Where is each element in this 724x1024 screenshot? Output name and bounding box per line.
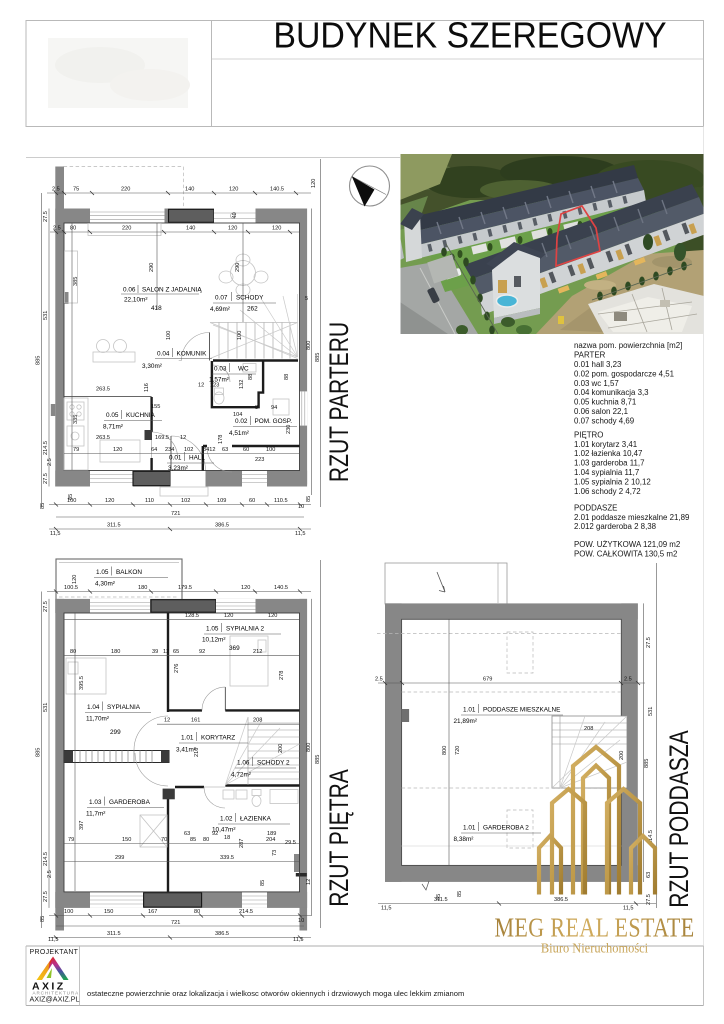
svg-text:73: 73 <box>272 850 278 856</box>
svg-text:311.5: 311.5 <box>107 931 121 937</box>
svg-text:3,23m²: 3,23m² <box>168 465 188 472</box>
svg-text:2.012 garderoba 2 8,38: 2.012 garderoba 2 8,38 <box>574 522 657 531</box>
svg-text:4,72m²: 4,72m² <box>231 772 251 779</box>
svg-text:2.5: 2.5 <box>47 458 53 466</box>
svg-text:12: 12 <box>180 435 186 441</box>
svg-text:92: 92 <box>212 831 218 837</box>
svg-text:287: 287 <box>239 839 245 848</box>
svg-text:120: 120 <box>113 447 122 453</box>
svg-text:721: 721 <box>171 511 180 517</box>
svg-text:1.04 sypialnia 11,7: 1.04 sypialnia 11,7 <box>574 468 639 477</box>
svg-text:0.07: 0.07 <box>215 295 228 302</box>
svg-text:0.04 komunikacja 3,3: 0.04 komunikacja 3,3 <box>574 388 649 397</box>
svg-text:75: 75 <box>73 187 79 193</box>
svg-text:531: 531 <box>43 703 49 712</box>
svg-text:85: 85 <box>457 891 463 897</box>
svg-text:123: 123 <box>210 383 219 389</box>
svg-text:140.5: 140.5 <box>274 585 288 591</box>
svg-text:12: 12 <box>198 383 204 389</box>
svg-text:3412: 3412 <box>203 447 215 453</box>
svg-text:88: 88 <box>248 374 254 380</box>
svg-text:679: 679 <box>483 677 492 683</box>
svg-text:MEG REAL ESTATE: MEG REAL ESTATE <box>494 913 694 943</box>
svg-text:29.5: 29.5 <box>285 840 296 846</box>
svg-text:4,30m²: 4,30m² <box>95 581 115 588</box>
svg-text:1.03 garderoba 11,7: 1.03 garderoba 11,7 <box>574 459 645 468</box>
svg-text:22,10m²: 22,10m² <box>124 297 147 304</box>
svg-text:AXIZ@AXIZ.PL: AXIZ@AXIZ.PL <box>30 995 80 1004</box>
svg-text:100: 100 <box>166 331 172 340</box>
svg-text:150: 150 <box>122 837 131 843</box>
svg-text:2.5: 2.5 <box>47 870 53 878</box>
svg-text:KOMUNIK: KOMUNIK <box>177 351 208 358</box>
svg-text:2.5: 2.5 <box>52 187 60 193</box>
svg-text:18: 18 <box>224 835 230 841</box>
svg-text:230: 230 <box>286 425 292 434</box>
svg-text:88: 88 <box>284 374 290 380</box>
svg-text:SYPIALNIA 2: SYPIALNIA 2 <box>226 626 264 633</box>
svg-text:200: 200 <box>619 751 625 760</box>
svg-text:PODDASZE: PODDASZE <box>574 503 617 512</box>
svg-text:SCHODY: SCHODY <box>236 295 264 302</box>
svg-text:369: 369 <box>229 645 240 652</box>
svg-text:11,5: 11,5 <box>50 531 60 537</box>
svg-text:70: 70 <box>161 837 167 843</box>
svg-text:39: 39 <box>152 649 158 655</box>
svg-text:85: 85 <box>40 916 46 922</box>
svg-text:0.03: 0.03 <box>214 366 227 373</box>
svg-text:128.5: 128.5 <box>185 613 199 619</box>
svg-text:12: 12 <box>164 718 170 724</box>
svg-text:85: 85 <box>306 496 312 502</box>
svg-text:8: 8 <box>255 405 258 411</box>
svg-text:1.05: 1.05 <box>96 569 109 576</box>
svg-text:102: 102 <box>181 498 190 504</box>
svg-text:85: 85 <box>260 880 266 886</box>
svg-text:339.5: 339.5 <box>220 855 234 861</box>
svg-text:1.04: 1.04 <box>87 704 100 711</box>
svg-text:2.5: 2.5 <box>375 677 383 683</box>
svg-text:21,89m²: 21,89m² <box>454 718 477 725</box>
svg-text:385: 385 <box>73 277 79 286</box>
svg-text:104: 104 <box>233 412 242 418</box>
svg-text:120: 120 <box>72 575 78 584</box>
svg-text:80: 80 <box>203 837 209 843</box>
svg-text:278: 278 <box>279 671 285 680</box>
svg-text:220: 220 <box>122 226 131 232</box>
svg-text:PARTER: PARTER <box>574 351 606 360</box>
svg-text:276: 276 <box>174 664 180 673</box>
svg-text:0.02 pom. gospodarcze 4,51: 0.02 pom. gospodarcze 4,51 <box>574 369 674 378</box>
svg-text:720: 720 <box>455 746 461 755</box>
svg-text:299: 299 <box>115 855 124 861</box>
svg-text:120: 120 <box>241 585 250 591</box>
svg-text:212: 212 <box>253 649 262 655</box>
svg-text:220: 220 <box>121 187 130 193</box>
svg-text:12: 12 <box>163 649 169 655</box>
svg-text:KORYTARZ: KORYTARZ <box>201 735 235 742</box>
svg-text:290: 290 <box>149 263 155 272</box>
svg-text:150: 150 <box>104 909 113 915</box>
svg-text:800: 800 <box>306 743 312 752</box>
svg-text:10,12m²: 10,12m² <box>202 637 225 644</box>
svg-text:80: 80 <box>70 226 76 232</box>
svg-text:27.5: 27.5 <box>43 473 49 484</box>
svg-text:8,38m²: 8,38m² <box>454 836 474 843</box>
svg-text:216: 216 <box>194 748 200 757</box>
svg-text:GARDEROBA 2: GARDEROBA 2 <box>483 825 529 832</box>
svg-text:85: 85 <box>436 894 442 900</box>
svg-text:180: 180 <box>111 649 120 655</box>
svg-text:1.01 korytarz 3,41: 1.01 korytarz 3,41 <box>574 440 637 449</box>
svg-text:60: 60 <box>243 447 249 453</box>
svg-text:223: 223 <box>255 457 264 463</box>
svg-text:1.01: 1.01 <box>463 707 476 714</box>
svg-text:79: 79 <box>68 837 74 843</box>
svg-text:311.5: 311.5 <box>107 523 121 529</box>
svg-text:208: 208 <box>584 726 593 732</box>
svg-text:885: 885 <box>644 759 650 768</box>
svg-text:0.01: 0.01 <box>169 455 182 462</box>
svg-text:11,5: 11,5 <box>295 531 305 537</box>
svg-text:263.5: 263.5 <box>96 387 110 393</box>
svg-text:100: 100 <box>64 909 73 915</box>
svg-text:27.5: 27.5 <box>43 211 49 222</box>
svg-text:263.5: 263.5 <box>96 435 110 441</box>
svg-text:0.07 schody 4,69: 0.07 schody 4,69 <box>574 416 635 425</box>
svg-text:800: 800 <box>306 341 312 350</box>
svg-text:4,69m²: 4,69m² <box>210 306 230 313</box>
svg-text:0.01 hall 3,23: 0.01 hall 3,23 <box>574 360 622 369</box>
svg-text:721: 721 <box>171 920 180 926</box>
svg-text:KUCHNIA: KUCHNIA <box>126 412 155 419</box>
svg-text:120: 120 <box>272 226 281 232</box>
svg-text:1.03: 1.03 <box>89 799 102 806</box>
svg-text:85: 85 <box>40 503 46 509</box>
svg-text:885: 885 <box>36 356 42 365</box>
svg-text:10: 10 <box>298 918 304 924</box>
svg-text:335: 335 <box>73 415 79 424</box>
svg-text:1.02 łazienka 10,47: 1.02 łazienka 10,47 <box>574 449 642 458</box>
svg-text:5: 5 <box>305 296 308 302</box>
svg-text:PROJEKTANT: PROJEKTANT <box>30 949 79 956</box>
svg-text:12: 12 <box>306 879 312 885</box>
svg-text:204: 204 <box>266 837 275 843</box>
svg-text:0.05: 0.05 <box>106 412 119 419</box>
svg-text:40: 40 <box>232 212 238 218</box>
svg-text:299: 299 <box>110 729 121 736</box>
svg-text:1.06: 1.06 <box>237 760 250 767</box>
svg-text:200: 200 <box>278 744 284 753</box>
svg-text:POM. GOSP.: POM. GOSP. <box>255 418 293 425</box>
svg-text:395.5: 395.5 <box>79 676 85 690</box>
svg-text:180: 180 <box>138 585 147 591</box>
svg-text:214.5: 214.5 <box>43 852 49 866</box>
svg-text:386.5: 386.5 <box>215 931 229 937</box>
svg-text:BALKON: BALKON <box>116 569 142 576</box>
svg-text:800: 800 <box>442 746 448 755</box>
svg-text:161: 161 <box>191 718 200 724</box>
svg-text:120: 120 <box>311 179 317 188</box>
svg-text:BUDYNEK SZEREGOWY: BUDYNEK SZEREGOWY <box>273 15 666 55</box>
svg-text:110: 110 <box>145 498 154 504</box>
svg-text:100.5: 100.5 <box>64 585 78 591</box>
svg-text:132: 132 <box>239 380 245 389</box>
svg-text:85: 85 <box>190 837 196 843</box>
svg-text:ŁAZIENKA: ŁAZIENKA <box>240 816 272 823</box>
svg-text:nazwa pom. powierzchnia [m2]: nazwa pom. powierzchnia [m2] <box>574 341 682 350</box>
svg-text:102: 102 <box>184 447 193 453</box>
svg-text:27.5: 27.5 <box>646 637 652 648</box>
svg-text:178: 178 <box>218 435 224 444</box>
svg-text:120: 120 <box>224 613 233 619</box>
svg-text:27.5: 27.5 <box>43 601 49 612</box>
svg-text:GARDEROBA: GARDEROBA <box>109 799 151 806</box>
svg-text:885: 885 <box>315 353 321 362</box>
svg-text:120: 120 <box>228 226 237 232</box>
svg-text:63: 63 <box>222 447 228 453</box>
svg-text:11,7m²: 11,7m² <box>86 811 105 818</box>
svg-text:3,30m²: 3,30m² <box>142 363 162 370</box>
svg-text:PODDASZE MIESZKALNE: PODDASZE MIESZKALNE <box>483 707 560 714</box>
svg-text:WC: WC <box>238 366 249 373</box>
svg-text:155: 155 <box>151 404 160 410</box>
svg-text:HALL: HALL <box>189 455 205 462</box>
svg-text:208: 208 <box>253 718 262 724</box>
svg-text:120: 120 <box>268 613 277 619</box>
svg-text:11,70m²: 11,70m² <box>86 716 109 723</box>
svg-text:531: 531 <box>43 311 49 320</box>
svg-text:PIĘTRO: PIĘTRO <box>574 430 603 439</box>
svg-text:POW. UŻYTKOWA 121,09 m2: POW. UŻYTKOWA 121,09 m2 <box>574 540 680 549</box>
svg-text:290: 290 <box>235 263 241 272</box>
svg-text:885: 885 <box>36 748 42 757</box>
svg-text:109: 109 <box>217 498 226 504</box>
svg-text:169.5: 169.5 <box>155 435 169 441</box>
svg-text:27.5: 27.5 <box>43 891 49 902</box>
svg-text:0.04: 0.04 <box>157 351 170 358</box>
svg-text:SCHODY 2: SCHODY 2 <box>257 760 290 767</box>
svg-text:1.01: 1.01 <box>463 825 476 832</box>
svg-text:2.01 poddasze mieszkalne 21,89: 2.01 poddasze mieszkalne 21,89 <box>574 513 690 522</box>
svg-text:64: 64 <box>151 447 157 453</box>
svg-text:397: 397 <box>79 821 85 830</box>
svg-text:386.5: 386.5 <box>215 523 229 529</box>
svg-text:167: 167 <box>148 909 157 915</box>
svg-text:1.01: 1.01 <box>181 735 194 742</box>
svg-text:11,5: 11,5 <box>293 937 303 943</box>
svg-text:179.5: 179.5 <box>178 585 192 591</box>
svg-text:10: 10 <box>298 504 304 510</box>
svg-text:SYPIALNIA: SYPIALNIA <box>107 704 141 711</box>
svg-text:8,71m²: 8,71m² <box>103 424 123 431</box>
svg-text:120: 120 <box>229 187 238 193</box>
svg-text:100: 100 <box>237 331 243 340</box>
svg-text:POW. CAŁKOWITA 130,5 m2: POW. CAŁKOWITA 130,5 m2 <box>574 549 677 558</box>
svg-text:3,41m²: 3,41m² <box>176 747 196 754</box>
svg-text:100: 100 <box>266 447 275 453</box>
svg-text:Biuro Nieruchomości: Biuro Nieruchomości <box>541 940 649 956</box>
svg-text:0.06 salon 22,1: 0.06 salon 22,1 <box>574 407 628 416</box>
svg-text:418: 418 <box>151 305 162 312</box>
svg-text:RZUT PODDASZA: RZUT PODDASZA <box>665 730 695 908</box>
svg-text:94: 94 <box>271 405 277 411</box>
svg-text:85: 85 <box>68 494 74 500</box>
svg-text:140: 140 <box>185 187 194 193</box>
svg-text:110.5: 110.5 <box>274 498 288 504</box>
svg-text:11,5: 11,5 <box>623 906 633 912</box>
svg-text:11,5: 11,5 <box>381 906 391 912</box>
svg-text:1.02: 1.02 <box>220 816 233 823</box>
svg-text:140: 140 <box>186 226 195 232</box>
svg-text:2.5: 2.5 <box>624 677 632 683</box>
svg-text:214.5: 214.5 <box>43 441 49 455</box>
svg-text:ostateczne powierzchnie oraz l: ostateczne powierzchnie oraz lokalizacja… <box>87 989 464 998</box>
svg-text:1.05 sypialnia 2 10,12: 1.05 sypialnia 2 10,12 <box>574 477 651 486</box>
svg-text:531: 531 <box>648 707 654 716</box>
svg-text:RZUT PIĘTRA: RZUT PIĘTRA <box>325 768 355 906</box>
svg-text:0.03 wc 1,57: 0.03 wc 1,57 <box>574 379 619 388</box>
svg-text:0.02: 0.02 <box>235 418 248 425</box>
svg-text:4,51m²: 4,51m² <box>229 430 249 437</box>
svg-text:262: 262 <box>247 306 258 313</box>
svg-text:386.5: 386.5 <box>554 897 568 903</box>
svg-text:65: 65 <box>173 649 179 655</box>
svg-text:234: 234 <box>165 447 174 453</box>
svg-text:1.06 schody 2 4,72: 1.06 schody 2 4,72 <box>574 487 641 496</box>
svg-text:116: 116 <box>144 383 150 392</box>
svg-text:79: 79 <box>73 447 79 453</box>
svg-text:120: 120 <box>105 498 114 504</box>
svg-text:140.5: 140.5 <box>270 187 284 193</box>
svg-text:885: 885 <box>315 755 321 764</box>
svg-text:1.05: 1.05 <box>206 626 219 633</box>
svg-text:60: 60 <box>249 498 255 504</box>
svg-text:0.06: 0.06 <box>123 287 136 294</box>
svg-text:63: 63 <box>646 872 652 878</box>
svg-text:0.05 kuchnia 8,71: 0.05 kuchnia 8,71 <box>574 398 636 407</box>
svg-text:SALON Z JADALNIĄ: SALON Z JADALNIĄ <box>142 287 202 294</box>
svg-text:92: 92 <box>199 649 205 655</box>
svg-text:RZUT PARTERU: RZUT PARTERU <box>325 322 355 482</box>
